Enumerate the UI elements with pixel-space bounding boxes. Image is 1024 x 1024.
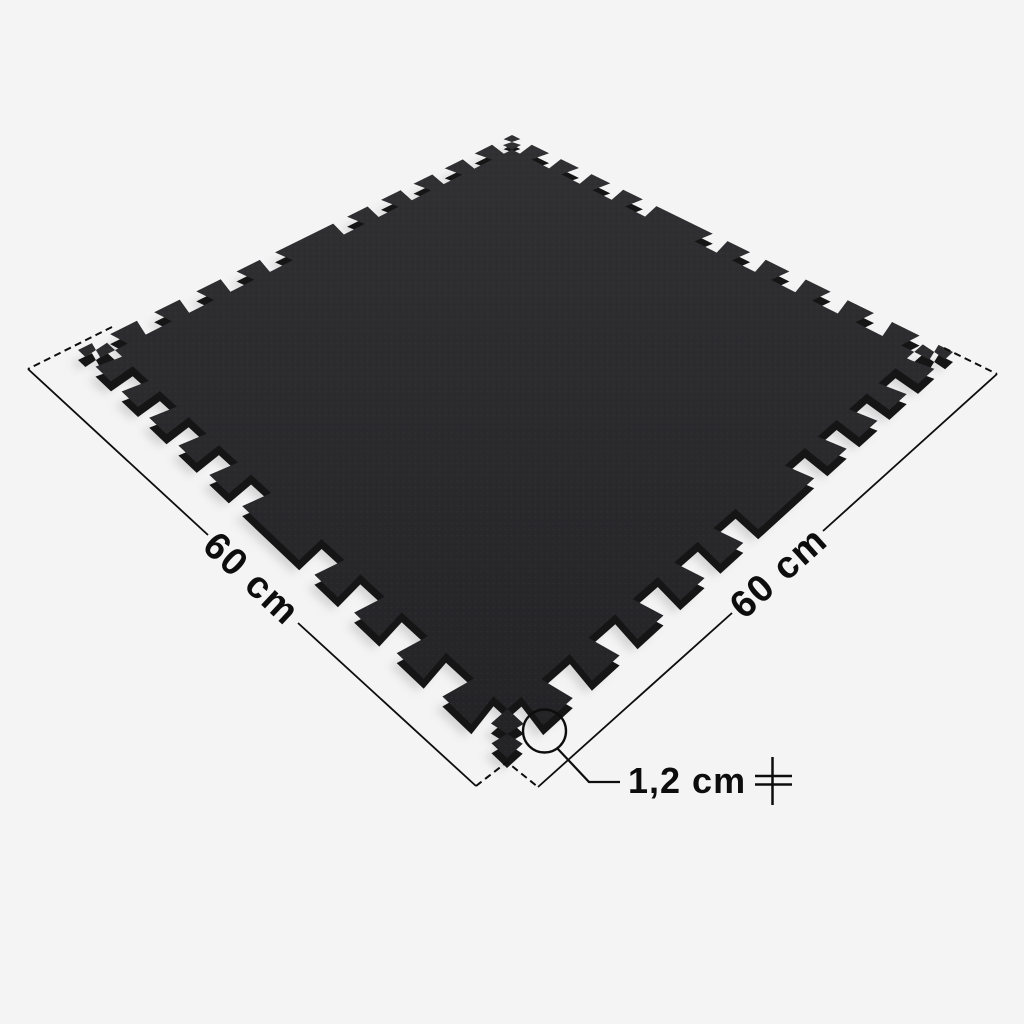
thickness-dimension-label: 1,2 cm — [628, 760, 746, 801]
product-dimension-diagram: 60 cm 60 cm 1,2 cm — [0, 0, 1024, 1024]
